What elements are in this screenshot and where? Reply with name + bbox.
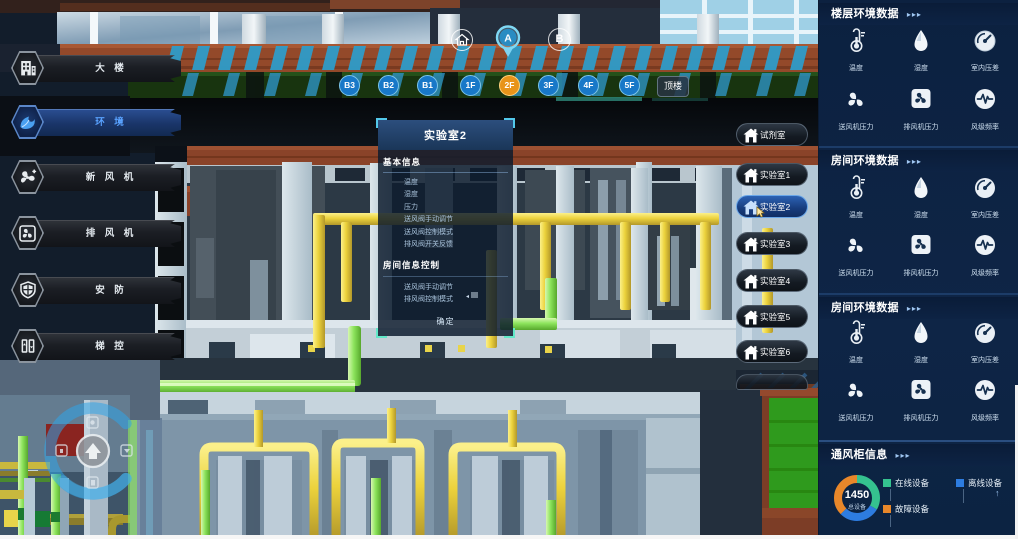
svg-text:总设备: 总设备 — [848, 503, 866, 511]
svg-text:A: A — [504, 32, 512, 44]
svg-text:1450: 1450 — [845, 489, 869, 501]
